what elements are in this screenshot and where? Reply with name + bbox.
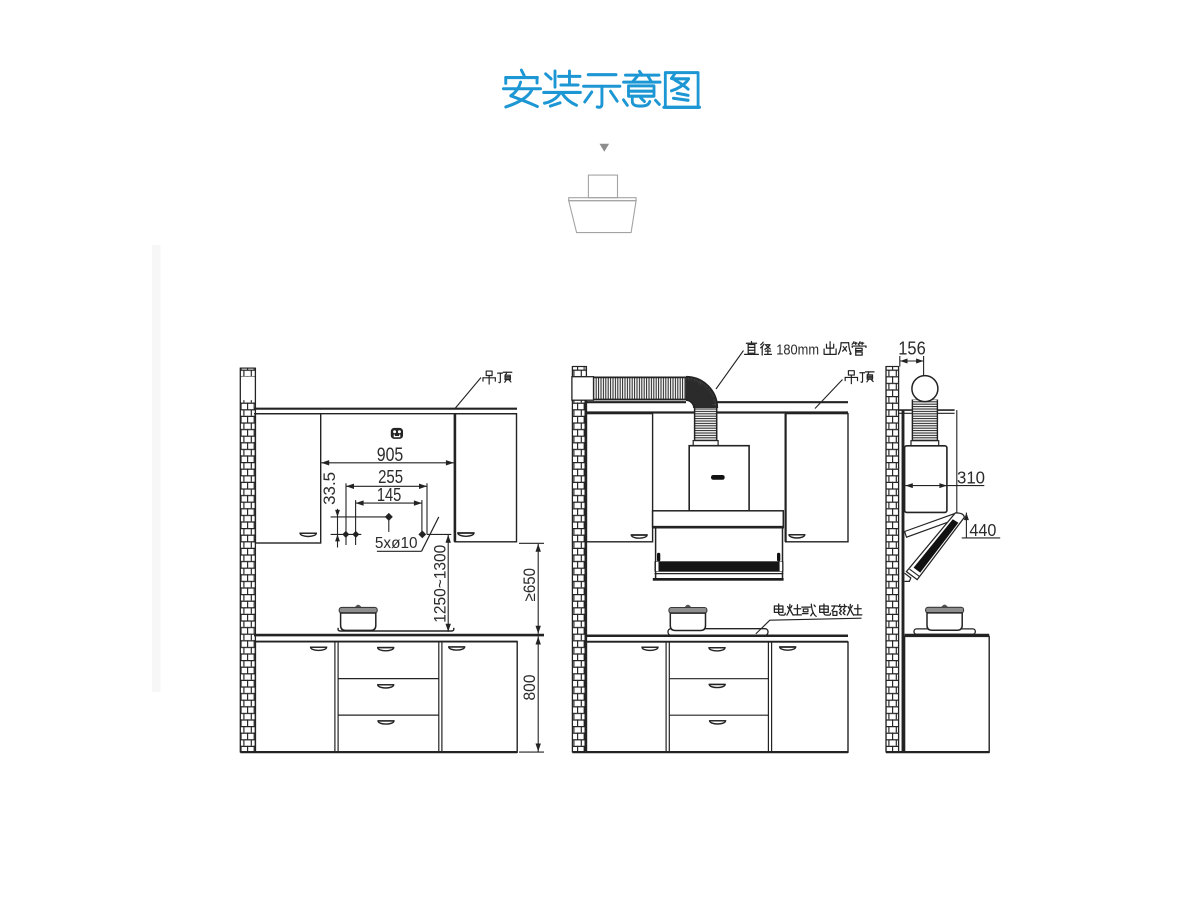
svg-text:800: 800 [521,675,539,701]
svg-text:33.5: 33.5 [321,472,339,505]
svg-text:145: 145 [377,485,402,505]
svg-text:156: 156 [898,338,926,358]
svg-text:310: 310 [957,468,985,488]
svg-text:255: 255 [378,467,403,487]
svg-text:180mm: 180mm [776,341,819,358]
svg-text:905: 905 [377,445,404,466]
svg-text:5xø10: 5xø10 [375,535,418,552]
svg-text:1250~1300: 1250~1300 [431,545,449,623]
svg-text:≥650: ≥650 [521,568,539,602]
svg-text:440: 440 [969,520,996,540]
